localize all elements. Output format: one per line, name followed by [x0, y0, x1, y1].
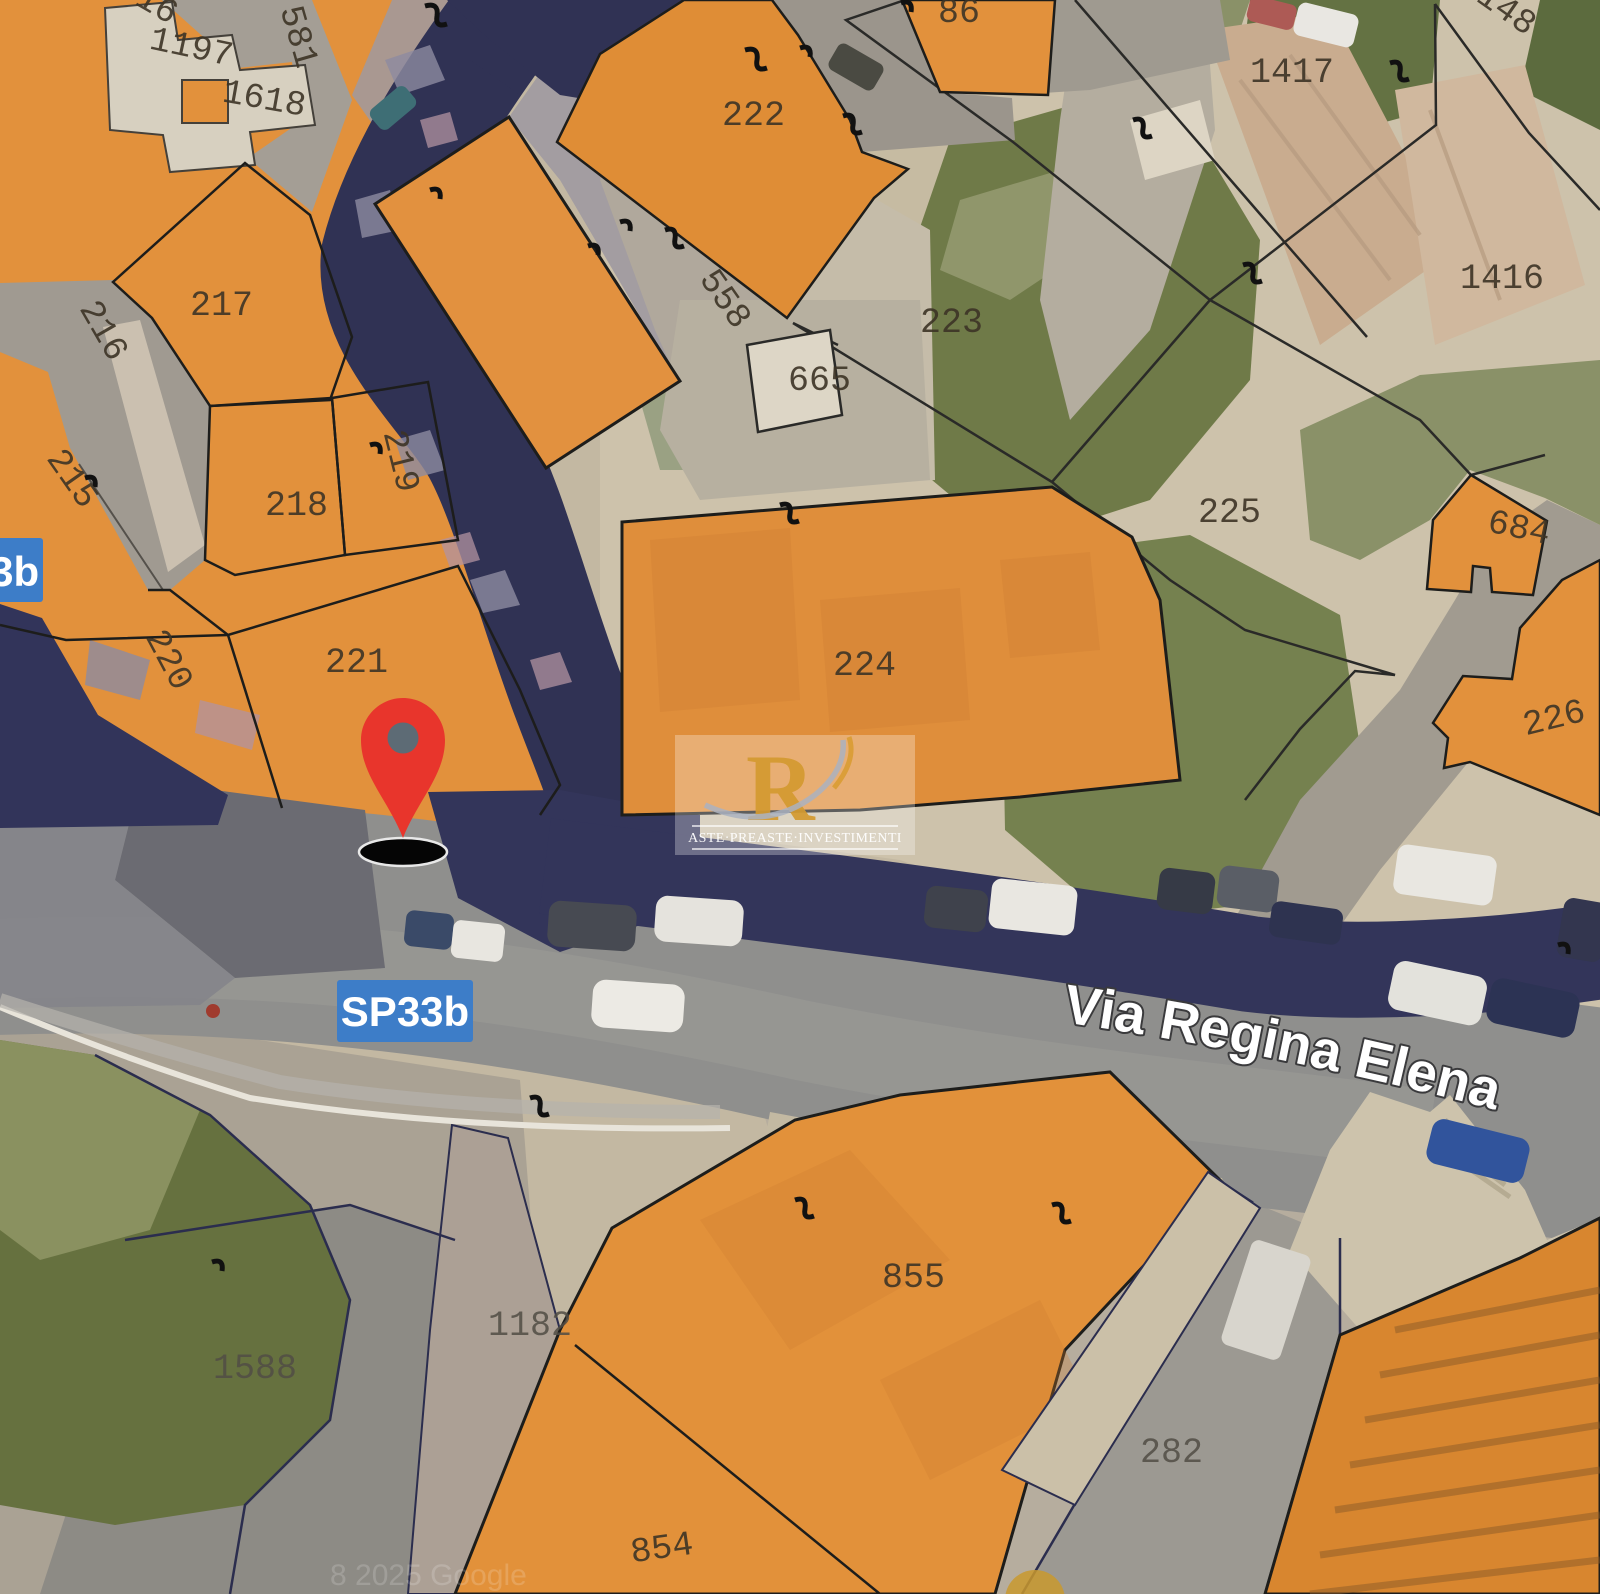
- svg-text:221: 221: [325, 643, 388, 683]
- svg-text:217: 217: [190, 286, 253, 326]
- svg-text:R: R: [746, 735, 816, 841]
- svg-text:855: 855: [882, 1258, 945, 1298]
- svg-text:224: 224: [833, 646, 896, 686]
- svg-text:1588: 1588: [213, 1349, 297, 1389]
- svg-text:225: 225: [1198, 493, 1261, 533]
- svg-text:222: 222: [722, 96, 785, 136]
- svg-text:SP33b: SP33b: [341, 988, 469, 1035]
- svg-text:ASTE·PREASTE·INVESTIMENTI: ASTE·PREASTE·INVESTIMENTI: [688, 831, 902, 846]
- svg-text:1182: 1182: [488, 1306, 572, 1346]
- svg-text:86: 86: [938, 0, 980, 33]
- svg-text:218: 218: [265, 486, 328, 526]
- svg-text:8 2025 Google: 8 2025 Google: [330, 1559, 527, 1592]
- svg-text:SP33b: SP33b: [0, 548, 39, 595]
- svg-text:282: 282: [1140, 1433, 1203, 1473]
- svg-text:1417: 1417: [1250, 53, 1334, 93]
- svg-text:1416: 1416: [1460, 259, 1544, 299]
- svg-text:223: 223: [920, 303, 983, 343]
- svg-text:665: 665: [788, 361, 851, 401]
